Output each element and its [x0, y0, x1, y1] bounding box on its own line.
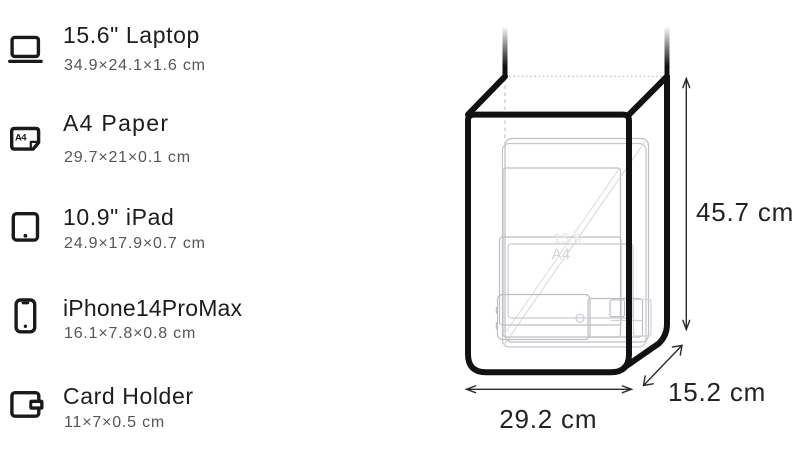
- svg-text:15.6: 15.6: [553, 232, 581, 248]
- svg-text:A4: A4: [552, 247, 571, 264]
- svg-text:A4: A4: [15, 132, 27, 143]
